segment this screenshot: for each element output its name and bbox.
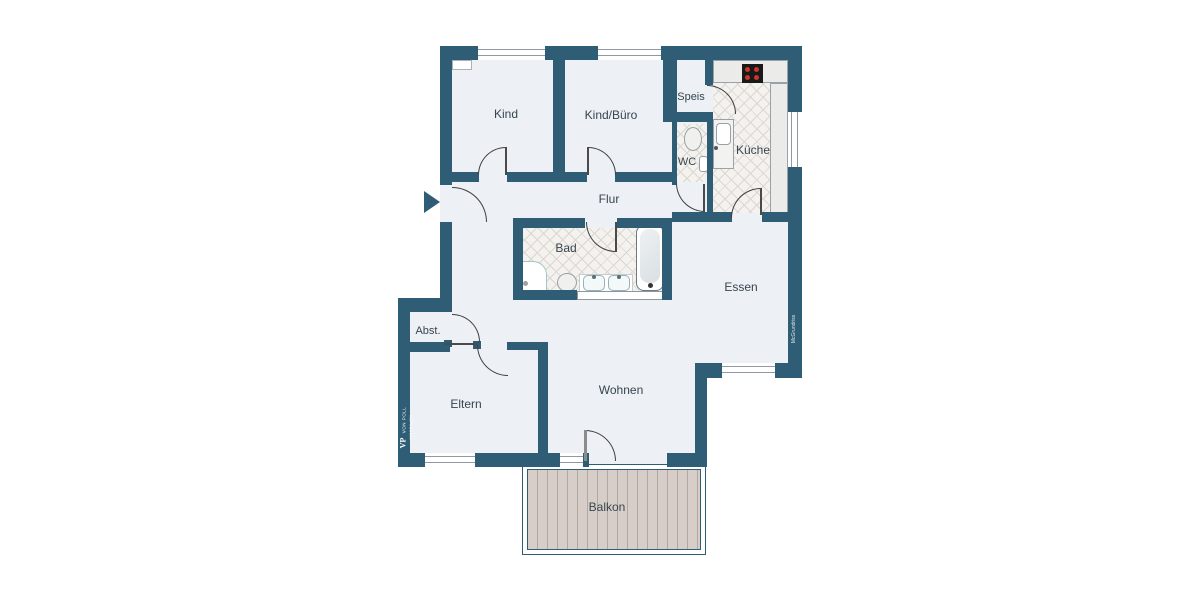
wall-top-3 <box>661 46 802 60</box>
room-label-bad: Bad <box>555 241 576 255</box>
wall-flur-top-3 <box>615 172 677 182</box>
room-label-kueche: Küche <box>736 143 770 157</box>
wall-bottom-3 <box>667 453 707 467</box>
window-balcony-fixed-panel <box>560 453 583 467</box>
bad-door-leaf <box>615 222 617 252</box>
room-label-wc: WC <box>678 156 696 168</box>
bathtub-icon <box>636 225 664 291</box>
room-label-eltern: Eltern <box>450 397 481 411</box>
bath-ledge <box>577 291 668 300</box>
room-label-wohnen: Wohnen <box>599 383 643 397</box>
wall-left-upper-1 <box>440 46 452 185</box>
wall-bad-top-1 <box>513 218 585 228</box>
wall-flur-essen-1 <box>672 212 732 222</box>
entrance-arrow-icon <box>424 191 440 213</box>
wall-flur-essen-2 <box>762 212 788 222</box>
window-kind-buero <box>598 46 661 60</box>
kitchen-counter-right <box>770 83 788 213</box>
balcony-door-leaf <box>584 430 587 461</box>
kind-wall-niche <box>452 60 472 70</box>
room-label-balkon: Balkon <box>589 500 626 514</box>
window-kitchen <box>788 112 802 167</box>
wall-flur-top-1 <box>452 172 479 182</box>
floor-lower-block <box>407 310 695 458</box>
logo-name: VON POLL <box>402 407 407 434</box>
watermark-text: McGrundriss <box>791 301 799 357</box>
wall-abst-eltern-divider <box>398 342 450 352</box>
wall-speis-right <box>705 60 713 85</box>
kueche-door-leaf <box>760 188 762 215</box>
room-label-kind-buero: Kind/Büro <box>585 108 638 122</box>
floorplan-canvas: Kind Kind/Büro Speis WC Küche Flur Bad E… <box>0 0 1200 600</box>
room-label-kind: Kind <box>494 107 518 121</box>
window-eltern <box>425 453 475 467</box>
eltern-door-leaf <box>445 343 477 345</box>
wall-bad-left <box>513 218 523 300</box>
bath-sink-right-icon <box>608 275 630 291</box>
kind-door-leaf <box>505 147 507 175</box>
wall-speis-bottom <box>663 112 713 122</box>
wall-kind-divider <box>553 60 565 172</box>
kitchen-faucet-icon <box>714 146 718 150</box>
kitchen-sink-icon <box>716 123 731 145</box>
wc-door-leaf <box>703 184 705 212</box>
stove-icon <box>742 64 763 83</box>
logo-monogram: VP <box>399 438 408 449</box>
wall-flur-top-2 <box>507 172 587 182</box>
wall-bad-bottom <box>513 290 577 300</box>
kind-buero-door-leaf <box>587 147 589 175</box>
room-label-abst: Abst. <box>415 325 440 337</box>
von-poll-logo: VP VON POLL IMMOBILIEN <box>399 400 412 456</box>
wall-eltern-right <box>538 342 548 458</box>
room-label-essen: Essen <box>724 280 757 294</box>
wall-bad-right <box>662 218 672 300</box>
wc-toilet-icon <box>684 127 702 151</box>
wall-wc-left <box>672 122 677 185</box>
floor-entrance-gap <box>440 185 452 222</box>
room-label-speis: Speis <box>677 91 705 103</box>
bath-sink-left-icon <box>583 275 605 291</box>
window-kind <box>478 46 545 60</box>
wall-top-2 <box>545 46 598 60</box>
wall-wohnen-right <box>695 378 707 453</box>
wall-kitchen-left <box>707 112 713 222</box>
room-label-flur: Flur <box>599 192 620 206</box>
logo-subtitle: IMMOBILIEN <box>408 400 414 456</box>
window-essen <box>722 363 775 378</box>
